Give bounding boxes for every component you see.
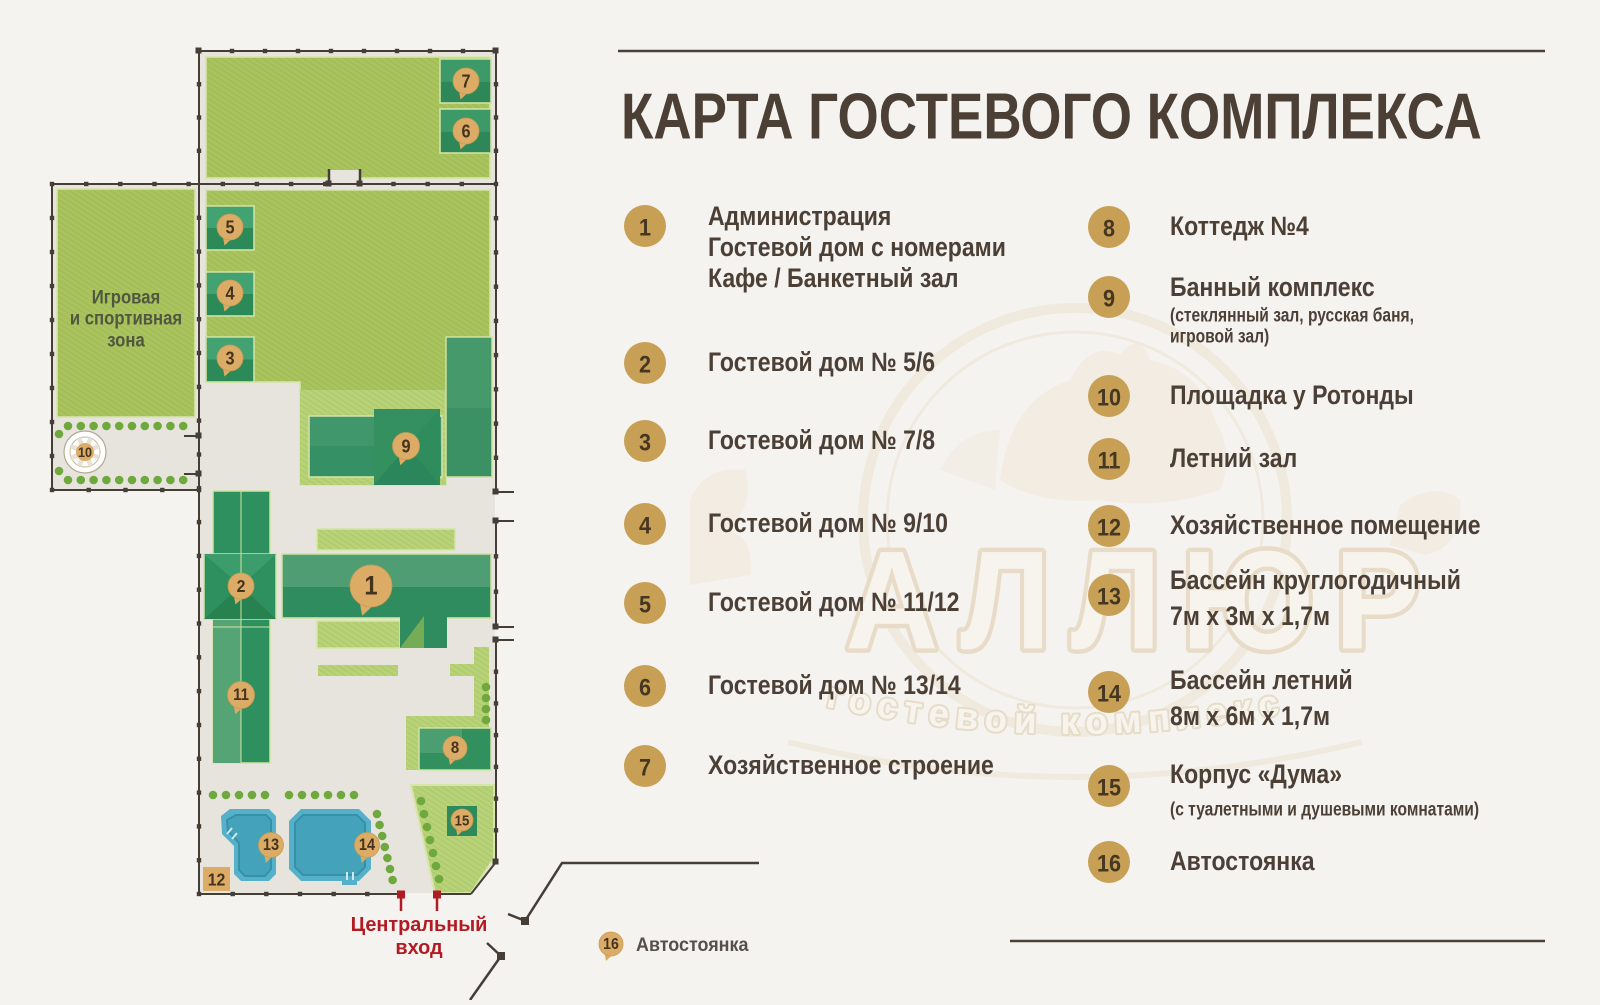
svg-text:4: 4	[639, 511, 651, 538]
svg-text:1: 1	[364, 571, 377, 601]
svg-text:7: 7	[639, 753, 651, 780]
svg-text:КАРТА ГОСТЕВОГО КОМПЛЕКСА: КАРТА ГОСТЕВОГО КОМПЛЕКСА	[621, 79, 1482, 152]
svg-text:6: 6	[639, 673, 651, 700]
svg-text:зона: зона	[107, 329, 145, 350]
svg-text:5: 5	[639, 590, 651, 617]
svg-text:13: 13	[1097, 582, 1121, 609]
svg-text:7: 7	[461, 70, 470, 91]
svg-text:9: 9	[401, 435, 410, 456]
svg-text:10: 10	[78, 445, 92, 461]
svg-text:игровой зал): игровой зал)	[1170, 325, 1269, 347]
svg-text:Гостевой дом № 11/12: Гостевой дом № 11/12	[708, 589, 959, 618]
svg-text:11: 11	[1098, 446, 1121, 473]
svg-text:9: 9	[1103, 284, 1115, 311]
svg-text:Гостевой дом № 7/8: Гостевой дом № 7/8	[708, 427, 935, 456]
svg-text:11: 11	[233, 686, 249, 704]
svg-text:Автостоянка: Автостоянка	[636, 933, 749, 955]
svg-text:вход: вход	[395, 937, 442, 959]
svg-text:Администрация: Администрация	[708, 203, 891, 232]
svg-text:Игровая: Игровая	[92, 286, 160, 307]
svg-text:4: 4	[225, 282, 234, 303]
svg-text:3: 3	[639, 428, 651, 455]
svg-text:Банный комплекс: Банный комплекс	[1170, 274, 1375, 303]
svg-text:15: 15	[1097, 773, 1121, 800]
svg-text:Гостевой дом № 5/6: Гостевой дом № 5/6	[708, 349, 935, 378]
svg-text:Хозяйственное строение: Хозяйственное строение	[708, 752, 994, 781]
svg-text:12: 12	[208, 869, 226, 889]
svg-text:Площадка у Ротонды: Площадка у Ротонды	[1170, 382, 1414, 411]
svg-text:8м х 6м х 1,7м: 8м х 6м х 1,7м	[1170, 703, 1330, 732]
svg-text:10: 10	[1097, 383, 1121, 410]
svg-text:7м х 3м х 1,7м: 7м х 3м х 1,7м	[1170, 603, 1330, 632]
svg-text:6: 6	[461, 120, 470, 141]
svg-text:Гостевой дом № 13/14: Гостевой дом № 13/14	[708, 672, 961, 701]
svg-text:5: 5	[225, 216, 234, 237]
svg-text:Бассейн летний: Бассейн летний	[1170, 667, 1353, 696]
svg-text:16: 16	[1097, 849, 1121, 876]
svg-text:Бассейн круглогодичный: Бассейн круглогодичный	[1170, 567, 1461, 596]
svg-text:14: 14	[359, 836, 375, 854]
svg-text:12: 12	[1097, 513, 1121, 540]
svg-text:15: 15	[455, 812, 470, 829]
svg-text:8: 8	[451, 739, 459, 757]
svg-text:и спортивная: и спортивная	[70, 307, 182, 328]
svg-text:(стеклянный зал, русская баня,: (стеклянный зал, русская баня,	[1170, 304, 1414, 326]
svg-text:Хозяйственное помещение: Хозяйственное помещение	[1170, 512, 1481, 541]
svg-text:1: 1	[639, 213, 651, 240]
svg-text:Гостевой дом с номерами: Гостевой дом с номерами	[708, 234, 1006, 263]
svg-text:Коттедж №4: Коттедж №4	[1170, 213, 1309, 242]
svg-text:13: 13	[263, 836, 279, 854]
svg-text:16: 16	[603, 935, 619, 953]
svg-text:Гостевой дом № 9/10: Гостевой дом № 9/10	[708, 510, 948, 539]
svg-text:Центральный: Центральный	[351, 914, 488, 936]
svg-text:Кафе / Банкетный зал: Кафе / Банкетный зал	[708, 265, 958, 294]
svg-text:2: 2	[237, 576, 246, 596]
svg-text:2: 2	[639, 350, 651, 377]
svg-text:Летний зал: Летний зал	[1170, 445, 1297, 474]
svg-text:8: 8	[1103, 214, 1115, 241]
svg-text:3: 3	[225, 347, 234, 368]
svg-text:Корпус «Дума»: Корпус «Дума»	[1170, 761, 1342, 790]
svg-text:(с туалетными и душевыми комна: (с туалетными и душевыми комнатами)	[1170, 798, 1479, 820]
svg-text:Автостоянка: Автостоянка	[1170, 848, 1315, 877]
svg-text:14: 14	[1097, 679, 1121, 706]
